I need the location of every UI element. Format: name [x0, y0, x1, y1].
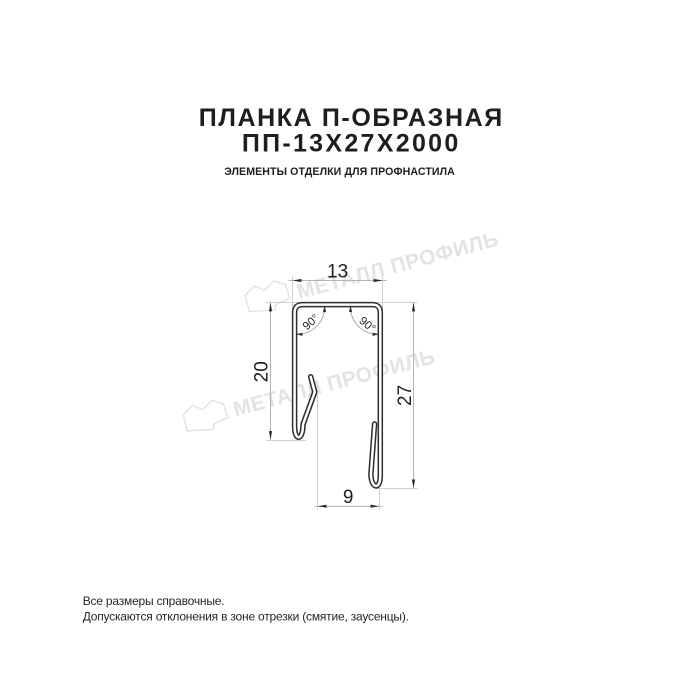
svg-text:13: 13	[327, 262, 348, 283]
svg-text:Допускаются отклонения в зоне: Допускаются отклонения в зоне отрезки (с…	[83, 610, 409, 624]
svg-text:20: 20	[251, 361, 272, 382]
svg-text:ЭЛЕМЕНТЫ ОТДЕЛКИ ДЛЯ ПРОФНАСТИ: ЭЛЕМЕНТЫ ОТДЕЛКИ ДЛЯ ПРОФНАСТИЛА	[224, 166, 455, 178]
svg-text:9: 9	[343, 487, 354, 508]
svg-text:ПП-13Х27Х2000: ПП-13Х27Х2000	[242, 130, 461, 158]
svg-text:ПЛАНКА П-ОБРАЗНАЯ: ПЛАНКА П-ОБРАЗНАЯ	[199, 104, 504, 132]
svg-text:Все размеры справочные.: Все размеры справочные.	[83, 594, 225, 608]
svg-text:27: 27	[395, 385, 416, 406]
